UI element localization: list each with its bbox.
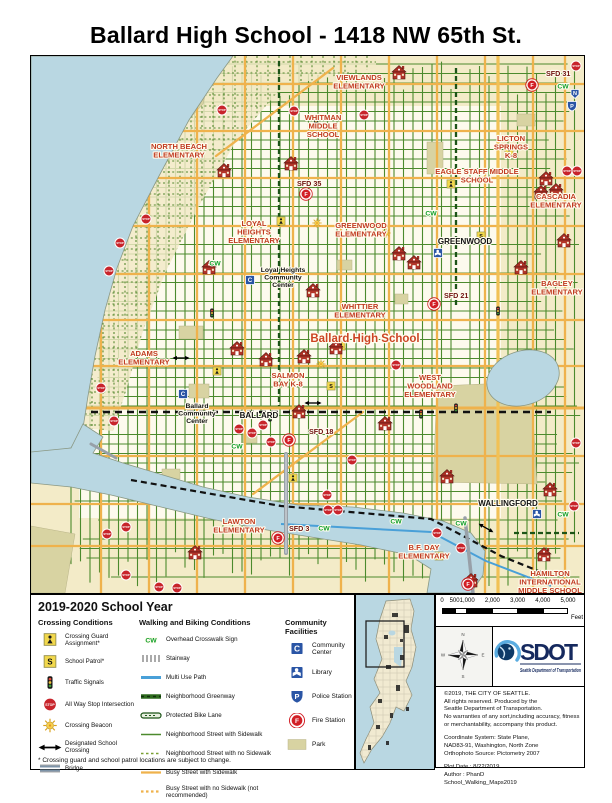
overhead-crosswalk-sign: CW <box>425 210 437 217</box>
fire-station-icon: F <box>526 79 539 92</box>
community-center-icon: C <box>179 390 188 399</box>
svg-text:STOP: STOP <box>573 169 580 173</box>
map-label: GREENWOOD <box>438 237 492 246</box>
svg-text:C: C <box>294 643 300 653</box>
legend-item: CWOverhead Crosswalk Sign <box>139 632 284 647</box>
svg-text:STOP: STOP <box>173 586 180 590</box>
compass-rose-icon: NESW <box>436 627 490 684</box>
svg-text:STOP: STOP <box>105 269 112 273</box>
svg-text:STOP: STOP <box>348 458 355 462</box>
svg-text:STOP: STOP <box>360 113 367 117</box>
library-icon <box>434 249 443 258</box>
stop-sign-icon: STOP <box>247 428 257 438</box>
sdot-logo: SDOTSeattle Department of Transportation <box>493 627 584 686</box>
crossing-guard-icon <box>447 180 455 188</box>
map-label: WHITMANMIDDLESCHOOL <box>305 113 342 139</box>
community-center-icon: C <box>285 641 309 656</box>
stop-sign-icon: STOP <box>121 522 131 532</box>
legend-item-label: Library <box>312 669 332 676</box>
cw-icon: CW <box>139 632 163 647</box>
legend-item-label: Bridge <box>65 765 83 772</box>
scale-segment <box>492 608 517 614</box>
stop-sign-icon: STOP <box>234 424 244 434</box>
svg-text:STOP: STOP <box>570 504 577 508</box>
traffic-signal-icon <box>38 675 62 690</box>
crossing-beacon-icon <box>312 218 321 227</box>
svg-text:STOP: STOP <box>290 109 297 113</box>
inset-map-canvas <box>356 595 434 769</box>
page-title: Ballard High School - 1418 NW 65th St. <box>0 22 612 49</box>
street-sidewalk-icon <box>139 727 163 742</box>
legend-walking-items: CWOverhead Crosswalk SignStairwayMulti U… <box>139 632 284 799</box>
svg-text:STOP: STOP <box>248 431 255 435</box>
legend-item: SSchool Patrol* <box>38 654 138 669</box>
overhead-crosswalk-sign: CW <box>209 260 221 267</box>
legend-item: Park <box>285 737 355 752</box>
legend-item: Neighborhood Greenway <box>139 689 284 704</box>
stop-sign-icon: STOP <box>323 505 333 515</box>
legend-crossing-items: Crossing Guard Assignment*SSchool Patrol… <box>38 632 138 776</box>
overhead-crosswalk-sign: CW <box>145 637 157 644</box>
fire-station-label: SFD 31 <box>546 69 570 78</box>
fire-icon: F <box>285 713 309 728</box>
credits-paragraph: Plot Date : 8/22/2019Author : PhanDSchoo… <box>444 764 584 787</box>
legend-item-label: All Way Stop Intersection <box>65 701 134 708</box>
stop-sign-icon: STOP <box>456 543 466 553</box>
overhead-crosswalk-sign: CW <box>557 511 569 518</box>
svg-text:S: S <box>329 384 333 390</box>
overhead-crosswalk-sign: CW <box>318 525 330 532</box>
community-center-icon: C <box>291 642 303 654</box>
walking-map: SSSTOPSTOPSTOPSTOPSTOPSTOPSTOPSTOPSTOPST… <box>30 55 585 594</box>
overhead-crosswalk-sign: CW <box>455 520 467 527</box>
svg-text:STOP: STOP <box>218 108 225 112</box>
scale-bar-panel: 05001,0002,0003,0004,0005,000Feet <box>435 594 585 627</box>
stop-sign-icon: STOP <box>289 106 299 116</box>
svg-text:STOP: STOP <box>122 573 129 577</box>
legend-item-label: Stairway <box>166 655 190 662</box>
legend-item-label: Traffic Signals <box>65 679 104 686</box>
credits-paragraph: Coordinate System: State Plane,NAD83-91,… <box>444 735 584 758</box>
crossing-guard-icon <box>44 634 56 646</box>
stop-sign-icon: STOP <box>333 505 343 515</box>
scale-tick: 5,000 <box>560 598 575 604</box>
police-station-icon: P <box>291 690 303 703</box>
credits-line: or merchantability, accompany this produ… <box>444 722 584 730</box>
stop-sign-icon: STOP <box>44 698 57 711</box>
legend-item: FFire Station <box>285 713 355 728</box>
fire-station-icon: F <box>272 532 285 545</box>
svg-text:SDOT: SDOT <box>520 639 578 665</box>
credits-line: NAD83-91, Washington, North Zone <box>444 743 584 751</box>
map-label: CASCADIAELEMENTARY <box>530 192 581 210</box>
legend-community-column: Community Facilities CCommunity CenterLi… <box>285 618 355 761</box>
scale-tick: 2,000 <box>485 598 500 604</box>
legend-item-label: Neighborhood Street with Sidewalk <box>166 731 262 738</box>
scale-tick: 1,000 <box>460 598 475 604</box>
svg-text:STOP: STOP <box>116 241 123 245</box>
overhead-crosswalk-sign: CW <box>231 443 243 450</box>
legend-item-label: Designated School Crossing <box>65 740 138 754</box>
svg-text:STOP: STOP <box>97 386 104 390</box>
stop-sign-icon: STOP <box>38 697 62 712</box>
library-icon <box>533 510 542 519</box>
svg-text:E: E <box>481 653 484 658</box>
fire-station-label: SFD 35 <box>297 179 321 188</box>
svg-text:C: C <box>248 277 253 284</box>
school-patrol-icon: S <box>38 654 62 669</box>
legend-item: Designated School Crossing <box>38 740 138 755</box>
stop-sign-icon: STOP <box>571 438 581 448</box>
legend-item-label: Crossing Guard Assignment* <box>65 633 138 647</box>
school-patrol-icon: S <box>327 382 335 390</box>
legend-item-label: School Patrol* <box>65 658 104 665</box>
legend-item: Traffic Signals <box>38 675 138 690</box>
legend-item-label: Park <box>312 741 325 748</box>
legend-community-header: Community Facilities <box>285 618 355 636</box>
svg-text:W: W <box>441 653 446 658</box>
fire-station-icon: F <box>289 713 304 728</box>
credits-line: Coordinate System: State Plane, <box>444 735 584 743</box>
crossing-guard-icon <box>38 632 62 647</box>
credits-paragraph: ©2019, THE CITY OF SEATTLE.All rights re… <box>444 691 584 729</box>
scale-segment <box>455 608 468 614</box>
map-label: VIEWLANDSELEMENTARY <box>333 73 384 91</box>
legend-item: Protected Bike Lane <box>139 708 284 723</box>
svg-text:STOP: STOP <box>110 419 117 423</box>
stop-sign-icon: STOP <box>96 383 106 393</box>
legend-community-items: CCommunity CenterLibraryPPolice StationF… <box>285 641 355 752</box>
stop-sign-icon: STOP <box>432 528 442 538</box>
fire-station-label: SFD 21 <box>444 291 468 300</box>
svg-text:STOP: STOP <box>457 546 464 550</box>
credits-line: ©2019, THE CITY OF SEATTLE. <box>444 691 584 699</box>
stop-sign-icon: STOP <box>121 570 131 580</box>
stop-sign-icon: STOP <box>109 416 119 426</box>
legend-item: CCommunity Center <box>285 641 355 656</box>
scale-tick: 4,000 <box>535 598 550 604</box>
fire-station-icon: F <box>300 188 313 201</box>
stop-sign-icon: STOP <box>347 455 357 465</box>
scale-segment <box>442 608 455 614</box>
legend-item-label: Busy Street with Sidewalk <box>166 769 237 776</box>
stop-sign-icon: STOP <box>322 490 332 500</box>
map-label: GREENWOODELEMENTARY <box>335 221 387 239</box>
credits-line: No warranties of any sort,including accu… <box>444 714 584 722</box>
stairway-icon <box>139 651 163 666</box>
protected-bike-lane-icon <box>139 708 163 723</box>
map-label: BALLARD <box>240 411 279 420</box>
scale-segment <box>467 608 492 614</box>
legend-walking-column: Walking and Biking Conditions CWOverhead… <box>139 618 284 803</box>
greenway-icon <box>139 689 163 704</box>
community-center-icon: C <box>246 276 255 285</box>
compass-panel: NESW <box>435 626 493 687</box>
legend-item: Neighborhood Street with Sidewalk <box>139 727 284 742</box>
legend-item-label: Fire Station <box>312 717 345 724</box>
multi-use-path-icon <box>139 670 163 685</box>
stop-sign-icon: STOP <box>391 360 401 370</box>
scale-unit: Feet <box>571 615 583 621</box>
police-icon: P <box>285 689 309 704</box>
busy-sidewalk-icon <box>139 765 163 780</box>
traffic-signal-icon <box>48 676 53 689</box>
legend-item-label: Police Station <box>312 693 352 700</box>
svg-text:P: P <box>295 692 300 701</box>
crossing-beacon-icon <box>316 359 325 368</box>
legend-item-label: Community Center <box>312 642 355 656</box>
scale-tick: 0 <box>440 598 443 604</box>
school-crossing-arrow-icon <box>38 740 62 755</box>
legend-item: Stairway <box>139 651 284 666</box>
stop-sign-icon: STOP <box>359 110 369 120</box>
scale-segment <box>543 608 568 614</box>
svg-text:S: S <box>461 674 464 679</box>
svg-text:STOP: STOP <box>259 423 266 427</box>
svg-text:STOP: STOP <box>324 508 331 512</box>
library-icon <box>285 665 309 680</box>
traffic-signal-icon <box>210 309 214 318</box>
fire-station-icon: F <box>428 298 441 311</box>
svg-text:STOP: STOP <box>563 169 570 173</box>
crossing-guard-icon <box>277 217 285 225</box>
overhead-crosswalk-sign: CW <box>557 83 569 90</box>
svg-text:STOP: STOP <box>142 217 149 221</box>
legend-item: Library <box>285 665 355 680</box>
stop-sign-icon: STOP <box>104 266 114 276</box>
legend-item-label: Neighborhood Greenway <box>166 693 235 700</box>
legend: 2019-2020 School Year Crossing Condition… <box>30 594 355 770</box>
school-crossing-arrow-icon <box>39 744 62 750</box>
svg-text:STOP: STOP <box>392 363 399 367</box>
school-patrol-icon: S <box>44 655 56 667</box>
svg-text:P: P <box>570 104 574 110</box>
fire-station-icon: F <box>462 578 475 591</box>
svg-text:STOP: STOP <box>433 531 440 535</box>
svg-text:N: N <box>461 632 464 637</box>
svg-text:F: F <box>295 718 299 725</box>
svg-text:STOP: STOP <box>267 440 274 444</box>
fire-station-icon: F <box>283 434 296 447</box>
legend-item-label: Crossing Beacon <box>65 722 112 729</box>
svg-text:STOP: STOP <box>323 493 330 497</box>
legend-item: Multi Use Path <box>139 670 284 685</box>
credits-line: Seattle Department of Transportation. <box>444 706 584 714</box>
traffic-signal-icon <box>419 410 423 419</box>
legend-footnote: * Crossing guard and school patrol locat… <box>38 757 231 764</box>
legend-item-label: Neighborhood Street with no Sidewalk <box>166 750 271 757</box>
stop-sign-icon: STOP <box>562 166 572 176</box>
stop-sign-icon: STOP <box>258 420 268 430</box>
stop-sign-icon: STOP <box>102 529 112 539</box>
legend-columns: Crossing Conditions Crossing Guard Assig… <box>38 618 354 750</box>
legend-item-label: Multi Use Path <box>166 674 206 681</box>
sdot-logo-panel: SDOTSeattle Department of Transportation <box>492 626 585 687</box>
police-station-icon: P <box>568 102 577 112</box>
map-label: SALMONBAY K-8 <box>272 371 305 389</box>
credits-line: Orthophoto Source: Pictometry 2007 <box>444 751 584 759</box>
stop-sign-icon: STOP <box>572 166 582 176</box>
fire-station-label: SFD 18 <box>309 427 333 436</box>
legend-item: Busy Street with Sidewalk <box>139 765 284 780</box>
page: { "page": { "title": "Ballard High Schoo… <box>0 0 612 792</box>
svg-text:STOP: STOP <box>103 532 110 536</box>
svg-text:Seattle Department of Transpor: Seattle Department of Transportation <box>520 668 581 674</box>
crossing-beacon-icon <box>38 718 62 733</box>
crossing-beacon-icon <box>43 719 57 733</box>
library-icon <box>291 666 303 678</box>
crossing-guard-icon <box>213 367 221 375</box>
scale-tick: 500 <box>450 598 460 604</box>
map-label: Ballard High School <box>310 333 419 345</box>
legend-item: Crossing Beacon <box>38 718 138 733</box>
legend-item-label: Protected Bike Lane <box>166 712 222 719</box>
svg-text:S: S <box>47 657 52 666</box>
svg-text:C: C <box>181 391 186 398</box>
fire-station-label: SFD 3 <box>289 524 309 533</box>
svg-text:STOP: STOP <box>334 508 341 512</box>
svg-text:STOP: STOP <box>572 441 579 445</box>
svg-text:N: N <box>573 91 577 97</box>
stop-sign-icon: STOP <box>266 437 276 447</box>
map-canvas: SSSTOPSTOPSTOPSTOPSTOPSTOPSTOPSTOPSTOPST… <box>31 56 584 593</box>
credits-line: All rights reserved. Produced by the <box>444 699 584 707</box>
svg-text:STOP: STOP <box>155 585 162 589</box>
map-label: NORTH BEACHELEMENTARY <box>151 142 207 160</box>
map-label: WALLINGFORD <box>478 499 538 508</box>
legend-item: PPolice Station <box>285 689 355 704</box>
scale-segment <box>518 608 543 614</box>
credits-line: Author : PhanD <box>444 772 584 780</box>
legend-crossing-header: Crossing Conditions <box>38 618 138 627</box>
svg-text:STOP: STOP <box>235 427 242 431</box>
stop-sign-icon: STOP <box>569 501 579 511</box>
legend-item: STOPAll Way Stop Intersection <box>38 697 138 712</box>
credits-line: Plot Date : 8/22/2019 <box>444 764 584 772</box>
credits: ©2019, THE CITY OF SEATTLE.All rights re… <box>435 686 585 768</box>
svg-text:STOP: STOP <box>572 64 579 68</box>
crossing-guard-icon <box>289 474 297 482</box>
overhead-crosswalk-sign: CW <box>390 518 402 525</box>
stop-sign-icon: STOP <box>172 583 182 593</box>
traffic-signal-icon <box>454 404 458 413</box>
park-icon <box>285 737 309 752</box>
scale-tick: 3,000 <box>510 598 525 604</box>
map-label: WHITTIERELEMENTARY <box>334 302 385 320</box>
svg-text:STOP: STOP <box>122 525 129 529</box>
stop-sign-icon: STOP <box>141 214 151 224</box>
overview-inset-map <box>355 594 435 770</box>
stop-sign-icon: STOP <box>217 105 227 115</box>
legend-walking-header: Walking and Biking Conditions <box>139 618 284 627</box>
legend-item: Crossing Guard Assignment* <box>38 632 138 647</box>
scale-bar: 05001,0002,0003,0004,0005,000Feet <box>436 595 584 626</box>
traffic-signal-icon <box>496 307 500 316</box>
stop-sign-icon: STOP <box>115 238 125 248</box>
svg-text:STOP: STOP <box>45 702 55 706</box>
legend-year: 2019-2020 School Year <box>38 600 354 614</box>
stop-sign-icon: STOP <box>571 61 581 71</box>
legend-item-label: Overhead Crosswalk Sign <box>166 636 238 643</box>
stop-sign-icon: STOP <box>154 582 164 592</box>
credits-line: School_Walking_Maps2019 <box>444 780 584 788</box>
